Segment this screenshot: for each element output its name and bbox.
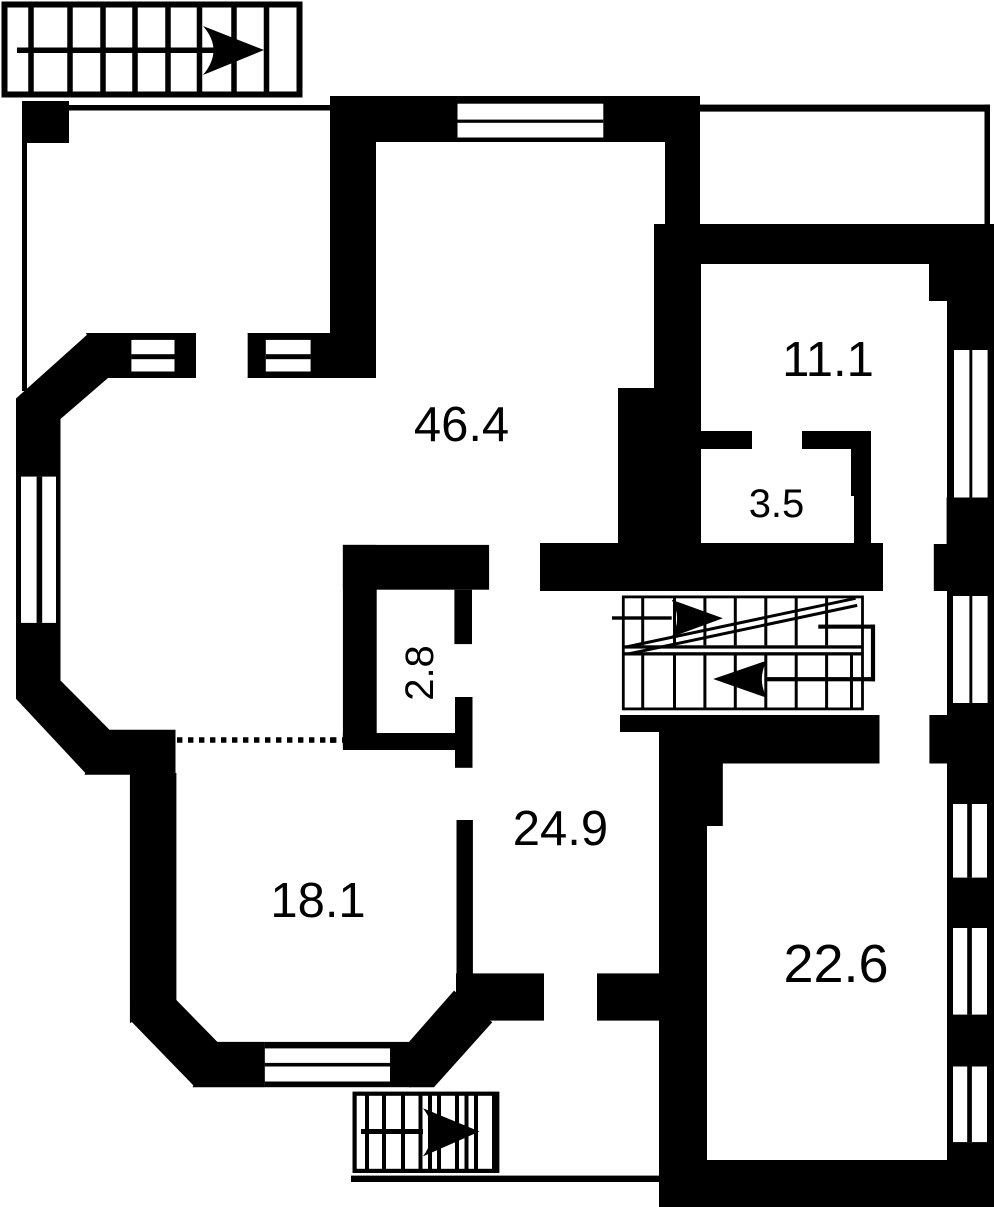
svg-text:24.9: 24.9 (513, 802, 608, 856)
svg-text:3.5: 3.5 (749, 482, 805, 526)
svg-text:2.8: 2.8 (398, 645, 442, 701)
svg-text:46.4: 46.4 (414, 398, 509, 452)
svg-text:18.1: 18.1 (270, 874, 365, 928)
svg-text:22.6: 22.6 (783, 934, 888, 994)
svg-text:11.1: 11.1 (782, 333, 874, 387)
